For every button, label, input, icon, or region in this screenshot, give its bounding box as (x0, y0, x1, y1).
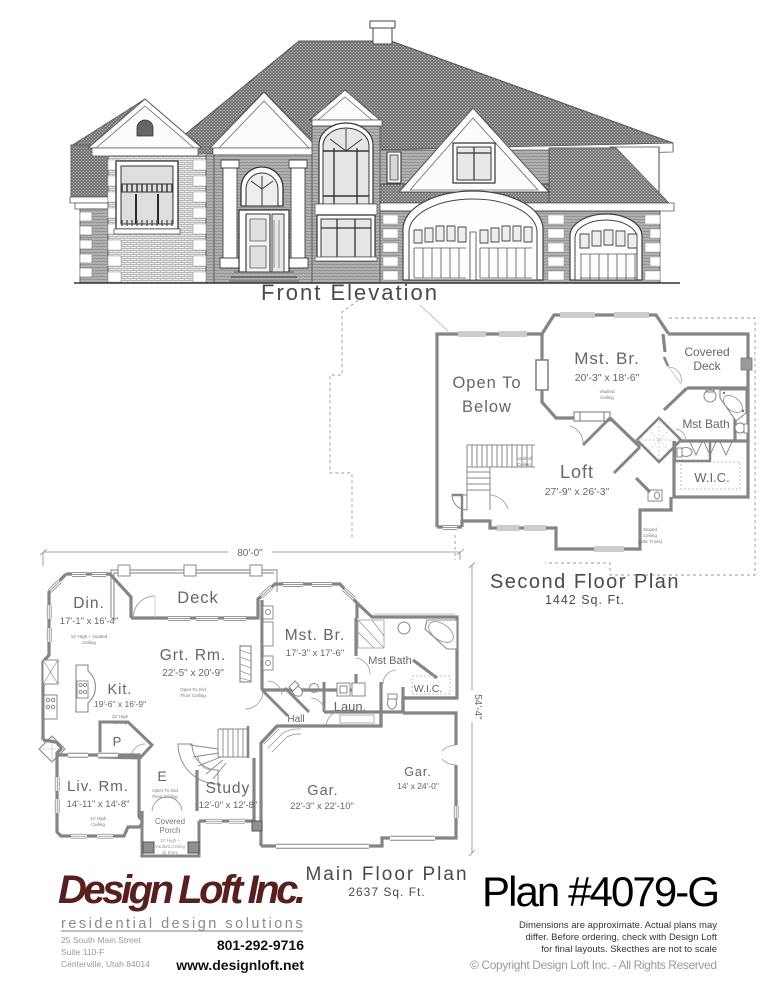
svg-text:27'-9" x 26'-3": 27'-9" x 26'-3" (545, 486, 610, 498)
svg-text:Vaulted: Vaulted (600, 389, 615, 394)
svg-text:Vaulted Ceiling: Vaulted Ceiling (155, 844, 185, 849)
svg-text:17'-1" x 16'-4": 17'-1" x 16'-4" (60, 616, 118, 627)
svg-text:@ Entry: @ Entry (162, 850, 179, 855)
svg-text:Laun.: Laun. (334, 699, 367, 714)
svg-text:residential design solutions: residential design solutions (61, 916, 305, 932)
svg-text:differ. Before ordering, chec: differ. Before ordering, check with Desi… (525, 932, 717, 943)
svg-text:Vaulted: Vaulted (517, 456, 532, 461)
svg-text:Liv. Rm.: Liv. Rm. (67, 778, 129, 795)
svg-text:14'-11" x 14'-8": 14'-11" x 14'-8" (66, 799, 129, 810)
svg-text:80'-0": 80'-0" (237, 548, 263, 559)
svg-text:Mst Bath: Mst Bath (368, 655, 411, 667)
svg-text:801-292-9716: 801-292-9716 (217, 937, 304, 953)
svg-text:Ceiling: Ceiling (91, 822, 105, 827)
svg-text:Below: Below (462, 398, 512, 416)
svg-text:Mst. Br.: Mst. Br. (574, 349, 640, 368)
svg-text:© Copyright Design Loft Inc.: © Copyright Design Loft Inc. - All Right… (470, 958, 717, 972)
svg-text:22'-3" x 22'-10": 22'-3" x 22'-10" (290, 801, 354, 812)
svg-text:22'-5" x 20'-9": 22'-5" x 20'-9" (162, 668, 224, 679)
svg-text:E: E (157, 768, 166, 784)
svg-text:Deck: Deck (693, 359, 721, 373)
svg-text:Din.: Din. (73, 595, 105, 612)
svg-text:12'-0" x 12'-8": 12'-0" x 12'-8" (199, 800, 257, 811)
svg-text:www.designloft.net: www.designloft.net (175, 957, 304, 973)
svg-text:P: P (113, 734, 122, 749)
svg-text:19'-6" x 16'-9": 19'-6" x 16'-9" (94, 699, 146, 709)
svg-text:Sloped: Sloped (643, 527, 658, 532)
svg-text:Loft: Loft (560, 462, 594, 482)
svg-text:Design Loft Inc.: Design Loft Inc. (58, 868, 306, 912)
svg-text:54'-4": 54'-4" (472, 694, 483, 720)
svg-text:Hall: Hall (287, 714, 304, 725)
svg-text:Open To 2nd: Open To 2nd (152, 788, 178, 793)
svg-text:1442 Sq. Ft.: 1442 Sq. Ft. (545, 593, 625, 607)
svg-text:Deck: Deck (177, 589, 219, 607)
svg-text:14' High: 14' High (90, 816, 107, 821)
svg-text:Porch: Porch (160, 826, 181, 835)
svg-text:Mst. Br.: Mst. Br. (285, 627, 346, 644)
svg-text:Open To 2nd: Open To 2nd (180, 687, 206, 692)
svg-text:Floor Ceiling: Floor Ceiling (180, 693, 206, 698)
svg-text:Study: Study (206, 780, 251, 797)
svg-text:Grt. Rm.: Grt. Rm. (160, 647, 227, 664)
svg-text:2637 Sq. Ft.: 2637 Sq. Ft. (348, 885, 425, 899)
svg-text:Open To: Open To (452, 374, 521, 392)
svg-text:Dimensions are approximate. A: Dimensions are approximate. Actual plans… (519, 920, 717, 931)
svg-text:25 South Main Street: 25 South Main Street (61, 935, 141, 945)
svg-text:W.I.C.: W.I.C. (694, 470, 729, 485)
svg-text:14' x 24'-0": 14' x 24'-0" (397, 781, 439, 791)
svg-text:Ceiling: Ceiling (600, 395, 614, 400)
svg-text:Front Elevation: Front Elevation (261, 280, 439, 305)
svg-text:Kit.: Kit. (108, 682, 133, 698)
svg-text:12' High: 12' High (112, 714, 129, 719)
svg-text:Covered: Covered (155, 817, 185, 826)
svg-text:12' High + Vaulted: 12' High + Vaulted (71, 634, 108, 639)
svg-text:Ceiling: Ceiling (643, 533, 657, 538)
svg-text:Gar.: Gar. (307, 783, 338, 799)
svg-text:Plan #4079-G: Plan #4079-G (482, 868, 720, 915)
svg-text:Floor Ceiling: Floor Ceiling (152, 794, 178, 799)
svg-text:Gar.: Gar. (404, 765, 432, 779)
svg-text:Main Floor Plan: Main Floor Plan (305, 864, 468, 885)
svg-text:Ceiling: Ceiling (82, 640, 96, 645)
svg-text:(Attic Truss): (Attic Truss) (638, 539, 663, 544)
svg-text:Second Floor Plan: Second Floor Plan (490, 571, 680, 593)
svg-text:W.I.C.: W.I.C. (414, 683, 443, 695)
svg-text:Mst Bath: Mst Bath (682, 417, 729, 431)
svg-text:Centerville, Utah 84014: Centerville, Utah 84014 (61, 959, 150, 969)
svg-text:Ceiling: Ceiling (517, 462, 531, 467)
svg-text:17'-3" x 17'-6": 17'-3" x 17'-6" (286, 648, 344, 659)
svg-text:20'-3" x 18'-6": 20'-3" x 18'-6" (575, 372, 640, 384)
svg-text:Suite 110-F: Suite 110-F (61, 947, 104, 957)
svg-text:12' High +: 12' High + (160, 838, 181, 843)
svg-text:for final layouts. Skecthes a: for final layouts. Skecthes are not to s… (541, 944, 717, 955)
svg-text:Covered: Covered (684, 345, 729, 359)
